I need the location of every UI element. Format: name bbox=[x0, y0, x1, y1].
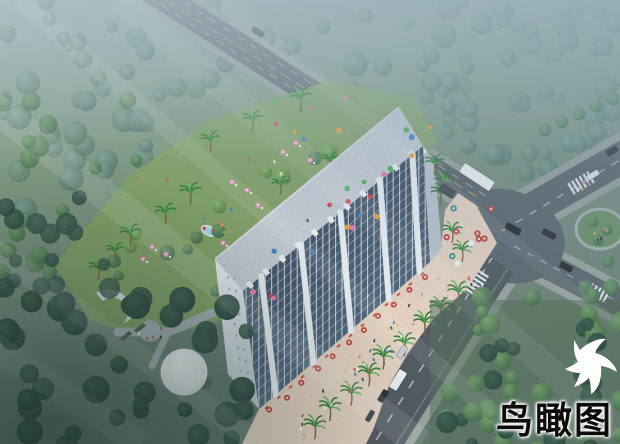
image-caption: 鸟瞰图 bbox=[496, 402, 613, 439]
mist-overlay bbox=[0, 0, 620, 444]
birdseye-rendering: 鸟瞰图 bbox=[0, 0, 620, 444]
rendering-scene bbox=[0, 0, 620, 444]
